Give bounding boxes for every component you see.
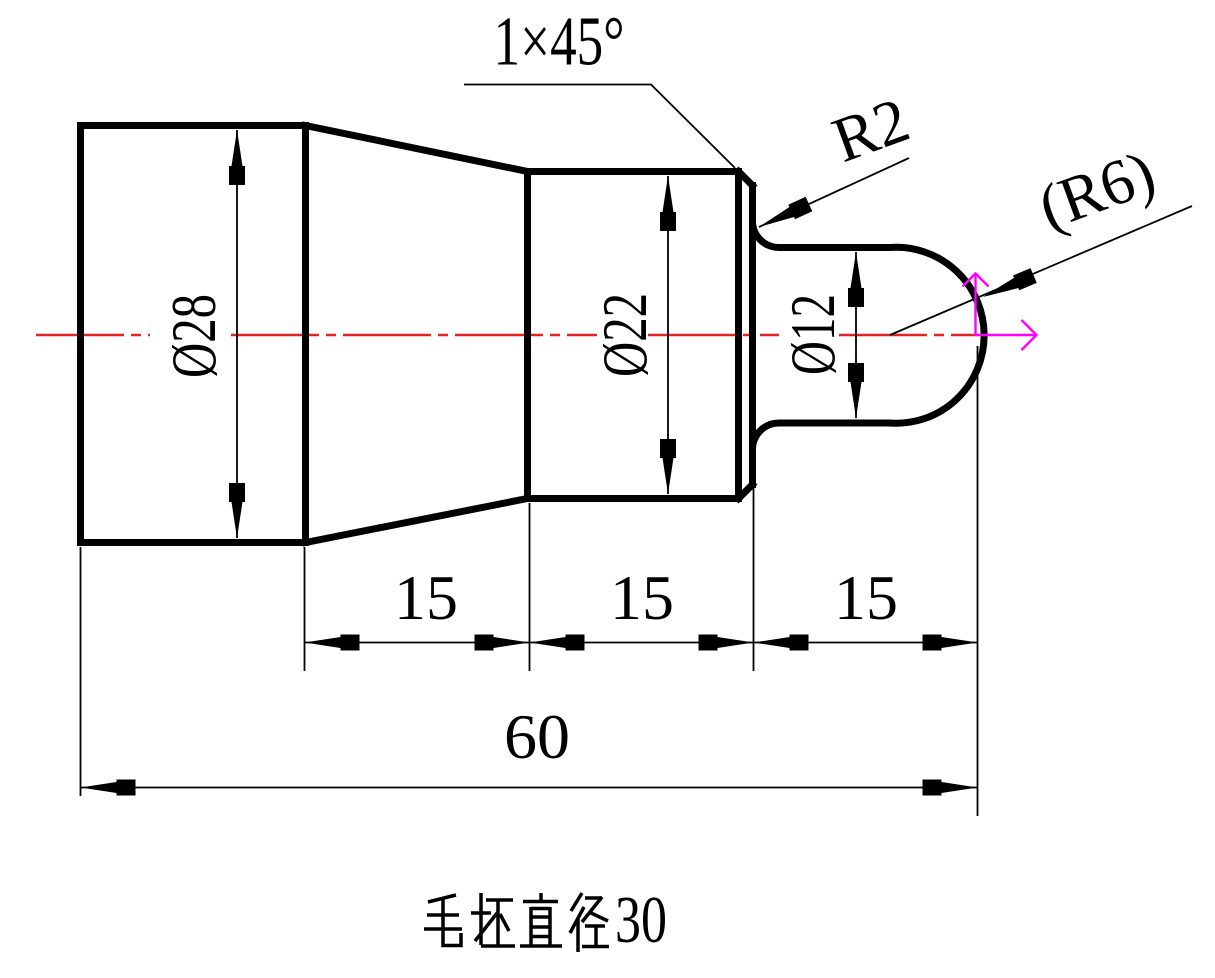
svg-text:1×45°: 1×45°	[494, 4, 625, 81]
svg-text:R2: R2	[823, 84, 917, 176]
svg-text:15: 15	[610, 563, 674, 633]
svg-text:30: 30	[615, 883, 667, 957]
svg-text:Ø12: Ø12	[777, 294, 848, 375]
svg-text:60: 60	[504, 702, 570, 772]
svg-text:15: 15	[394, 563, 458, 633]
svg-text:Ø28: Ø28	[158, 294, 229, 378]
svg-text:Ø22: Ø22	[589, 293, 660, 377]
svg-text:15: 15	[834, 563, 898, 633]
